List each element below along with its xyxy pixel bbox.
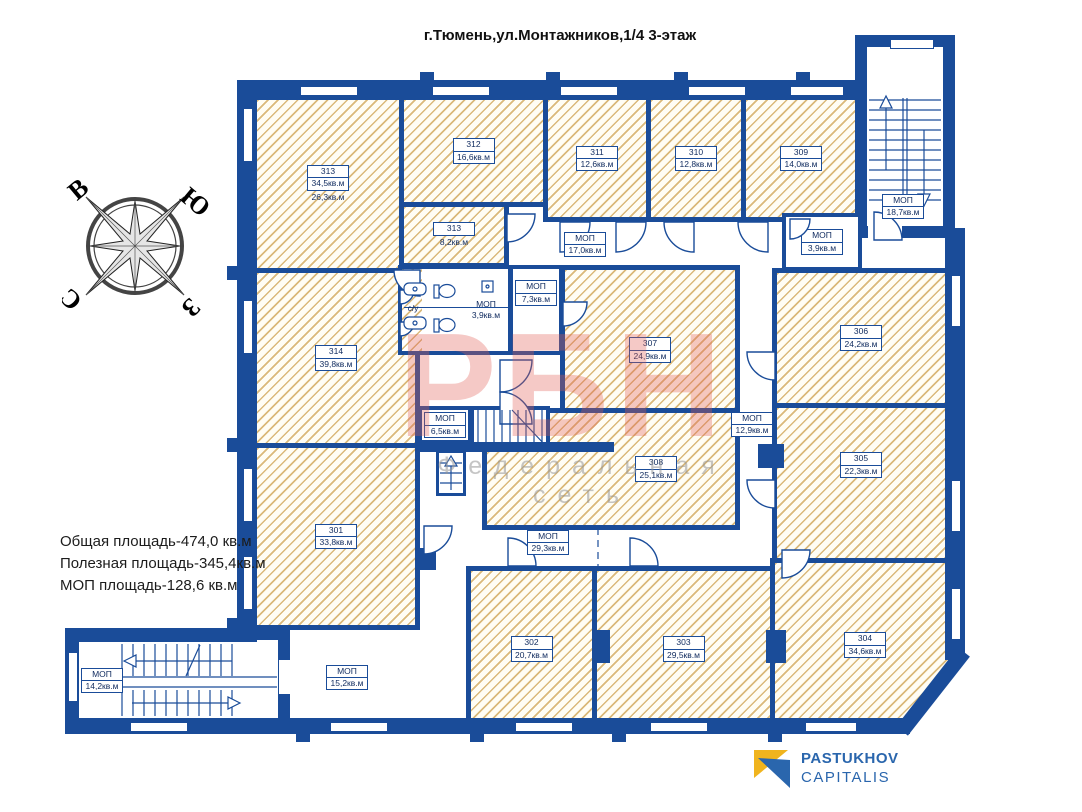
window: [243, 468, 253, 522]
room-label-304: 30434,6кв.м: [844, 632, 886, 657]
summary-mop: МОП площадь-128,6 кв.м: [60, 575, 310, 597]
room-label-306: 30624,2кв.м: [840, 325, 882, 350]
mop-room-7-3: МОП7,3кв.м: [509, 265, 563, 355]
room-304: 30434,6кв.м: [770, 558, 960, 732]
window: [805, 722, 857, 732]
wc-label: с/у: [403, 303, 423, 314]
wall-pier: [768, 732, 782, 742]
room-311: 31112,6кв.м: [543, 95, 651, 222]
room-313b: 313 8,2кв.м: [399, 202, 509, 268]
room-label-308: 30825,1кв.м: [635, 456, 677, 481]
window: [515, 722, 573, 732]
company-logo: PASTUKHOV CAPITALIS: [752, 748, 899, 790]
summary-total: Общая площадь-474,0 кв.м: [60, 531, 310, 553]
room-310: 31012,8кв.м: [646, 95, 746, 222]
compass-letter-west: З: [176, 292, 206, 322]
window: [68, 652, 78, 702]
mop-label-17-0: МОП17,0кв.м: [564, 232, 606, 257]
window: [560, 86, 618, 96]
mop-label-14-2: МОП14,2кв.м: [81, 668, 123, 693]
page-title: г.Тюмень,ул.Монтажников,1/4 3-этаж: [395, 27, 725, 44]
mop-label-18-7: МОП18,7кв.м: [882, 194, 924, 219]
room-label-313: 31334,5кв.м 26,3кв.м: [307, 165, 349, 202]
window: [650, 722, 708, 732]
window: [130, 722, 188, 732]
mop-label-7-3: МОП7,3кв.м: [515, 280, 557, 305]
wall-pier: [227, 438, 237, 452]
room-label-309: 30914,0кв.м: [780, 146, 822, 171]
mop-label-15-2: МОП15,2кв.м: [326, 665, 368, 690]
wall-pier: [420, 548, 436, 570]
window: [330, 722, 388, 732]
wall-pier: [420, 72, 434, 82]
room-306: 30624,2кв.м: [772, 268, 950, 408]
room-303: 30329,5кв.м: [592, 566, 775, 732]
wall-pier: [227, 618, 237, 632]
room-label-314: 31439,8кв.м: [315, 345, 357, 370]
mop-label-12-9: МОП12,9кв.м: [731, 412, 773, 437]
wall-pier: [766, 630, 786, 663]
room-309: 30914,0кв.м: [741, 95, 861, 222]
mop-label-3-9-wc: МОП3,9кв.м: [464, 299, 508, 321]
mop-label-6-5: МОП6,5кв.м: [424, 412, 466, 437]
window: [243, 108, 253, 162]
window: [790, 86, 844, 96]
mop-room-3-9-right: МОП3,9кв.м: [782, 213, 862, 271]
compass-rose: В Ю С З: [62, 168, 212, 328]
compass-letter-south: Ю: [175, 181, 212, 222]
room-label-307: 30724,9кв.м: [629, 337, 671, 362]
room-302: 30220,7кв.м: [466, 566, 597, 732]
wall-pier: [612, 732, 626, 742]
window: [243, 300, 253, 354]
summary-useful: Полезная площадь-345,4кв.м: [60, 553, 310, 575]
wall-pier: [296, 732, 310, 742]
room-label-303: 30329,5кв.м: [663, 636, 705, 661]
logo-line1: PASTUKHOV: [801, 750, 899, 769]
logo-line2: CAPITALIS: [801, 769, 899, 788]
room-314: 31439,8кв.м: [252, 268, 420, 448]
wall-pier: [470, 732, 484, 742]
logo-icon: [752, 748, 792, 790]
window: [688, 86, 746, 96]
window: [432, 86, 490, 96]
wall-pier: [674, 72, 688, 82]
mop-room-6-5: МОП6,5кв.м: [418, 406, 472, 444]
room-312: 31216,6кв.м: [399, 95, 548, 207]
wall-pier: [227, 266, 237, 280]
room-label-301: 30133,8кв.м: [315, 524, 357, 549]
mop-label-3-9-right: МОП3,9кв.м: [801, 229, 843, 254]
room-label-305: 30522,3кв.м: [840, 452, 882, 477]
window: [300, 86, 358, 96]
mop-label-29-3: МОП29,3кв.м: [527, 530, 569, 555]
room-label-302: 30220,7кв.м: [511, 636, 553, 661]
room-313: 31334,5кв.м 26,3кв.м: [252, 95, 404, 273]
window: [951, 480, 961, 532]
room-label-312: 31216,6кв.м: [453, 138, 495, 163]
room-label-313b: 313 8,2кв.м: [433, 222, 475, 247]
room-305: 30522,3кв.м: [772, 403, 950, 563]
compass-letter-north: С: [62, 282, 88, 316]
wc-block: с/у МОП3,9кв.м: [398, 265, 512, 355]
area-summary: Общая площадь-474,0 кв.м Полезная площад…: [60, 531, 310, 596]
room-label-310: 31012,8кв.м: [675, 146, 717, 171]
window: [951, 588, 961, 640]
wall-pier: [546, 72, 560, 82]
wall-pier: [796, 72, 810, 82]
window: [890, 39, 934, 49]
room-label-311: 31112,6кв.м: [576, 146, 618, 171]
wall-pier-corridor: [758, 444, 784, 468]
door-gap: [868, 224, 902, 238]
floor-plan: г.Тюмень,ул.Монтажников,1/4 3-этаж В Ю С…: [0, 0, 1082, 812]
wall-lobby-bottom: [418, 442, 614, 452]
door-gap: [279, 660, 293, 694]
stairs-stub: [436, 450, 466, 496]
room-307: 30724,9кв.м: [560, 265, 740, 415]
wall-pier: [593, 630, 610, 663]
window: [951, 275, 961, 327]
wall-bottom: [65, 718, 910, 734]
